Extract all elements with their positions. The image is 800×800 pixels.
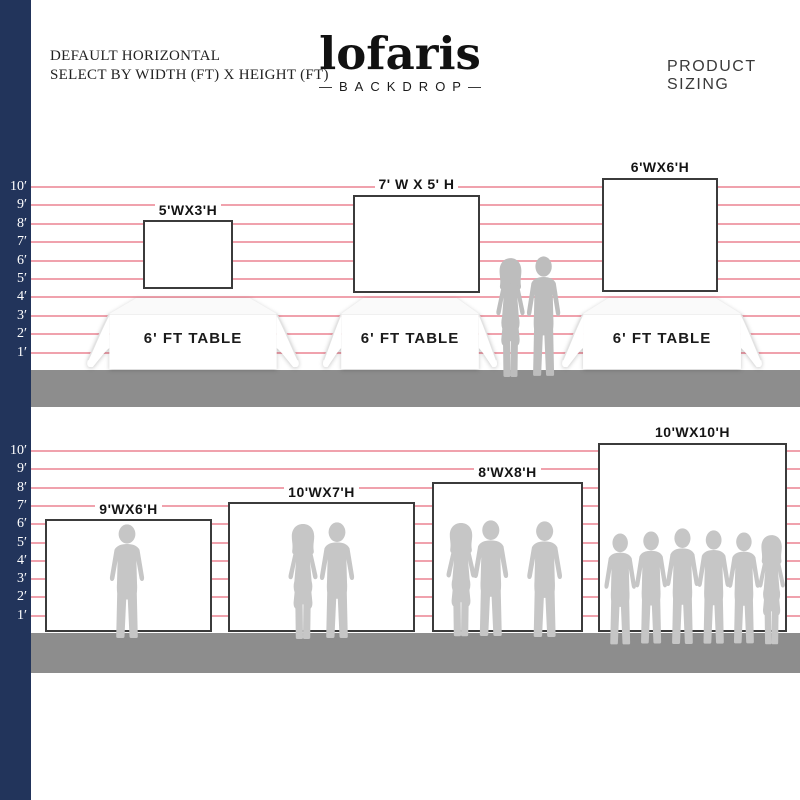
product-sizing-label: PRODUCT SIZING (667, 58, 800, 94)
floor-row1 (31, 370, 800, 407)
table-2-label: 6' FT TABLE (322, 330, 498, 347)
table-3-label: 6' FT TABLE (561, 330, 763, 347)
ruler-foot-label: 9′ (0, 460, 27, 477)
backdrop-7x5 (353, 195, 480, 293)
ruler-foot-label: 7′ (0, 233, 27, 250)
ruler-foot-label: 2′ (0, 588, 27, 605)
man-silhouette (104, 524, 150, 640)
ruler-foot-label: 6′ (0, 252, 27, 269)
ruler-foot-label: 5′ (0, 270, 27, 287)
ruler-foot-label: 8′ (0, 215, 27, 232)
ruler-foot-label: 2′ (0, 325, 27, 342)
backdrop-6x6-label: 6'WX6'H (572, 159, 748, 175)
brand-subtitle: —BACKDROP— (280, 79, 520, 94)
backdrop-8x8-label: 8'WX8'H (432, 464, 583, 480)
ruler-foot-label: 9′ (0, 196, 27, 213)
backdrop-10x10-label: 10'WX10'H (598, 424, 787, 440)
ruler-bar (0, 0, 31, 800)
couple-silhouette (282, 522, 360, 640)
ruler-foot-label: 1′ (0, 607, 27, 624)
ruler-foot-label: 10′ (0, 178, 27, 195)
backdrop-7x5-label: 7' W X 5' H (333, 176, 500, 192)
backdrop-5x3-label: 5'WX3'H (113, 202, 263, 218)
ruler-foot-label: 1′ (0, 344, 27, 361)
ruler-foot-label: 3′ (0, 570, 27, 587)
ruler-foot-label: 8′ (0, 479, 27, 496)
ruler-foot-label: 5′ (0, 534, 27, 551)
ruler-foot-label: 10′ (0, 442, 27, 459)
backdrop-9x6-label: 9'WX6'H (45, 501, 212, 517)
ruler-foot-label: 4′ (0, 552, 27, 569)
ruler-foot-label: 7′ (0, 497, 27, 514)
couple-silhouette-row1 (490, 256, 566, 378)
ruler-foot-label: 6′ (0, 515, 27, 532)
table-1-label: 6' FT TABLE (86, 330, 300, 347)
backdrop-6x6 (602, 178, 718, 292)
brand-logo: lofaris —BACKDROP— (280, 30, 520, 94)
trio-silhouette (440, 520, 568, 638)
backdrop-5x3 (143, 220, 233, 289)
group-silhouette (599, 528, 787, 646)
product-sizing-page: DEFAULT HORIZONTAL SELECT BY WIDTH (FT) … (0, 0, 800, 800)
ruler-foot-label: 3′ (0, 307, 27, 324)
backdrop-10x7-label: 10'WX7'H (228, 484, 415, 500)
brand-name: lofaris (280, 30, 520, 78)
ruler-foot-label: 4′ (0, 288, 27, 305)
